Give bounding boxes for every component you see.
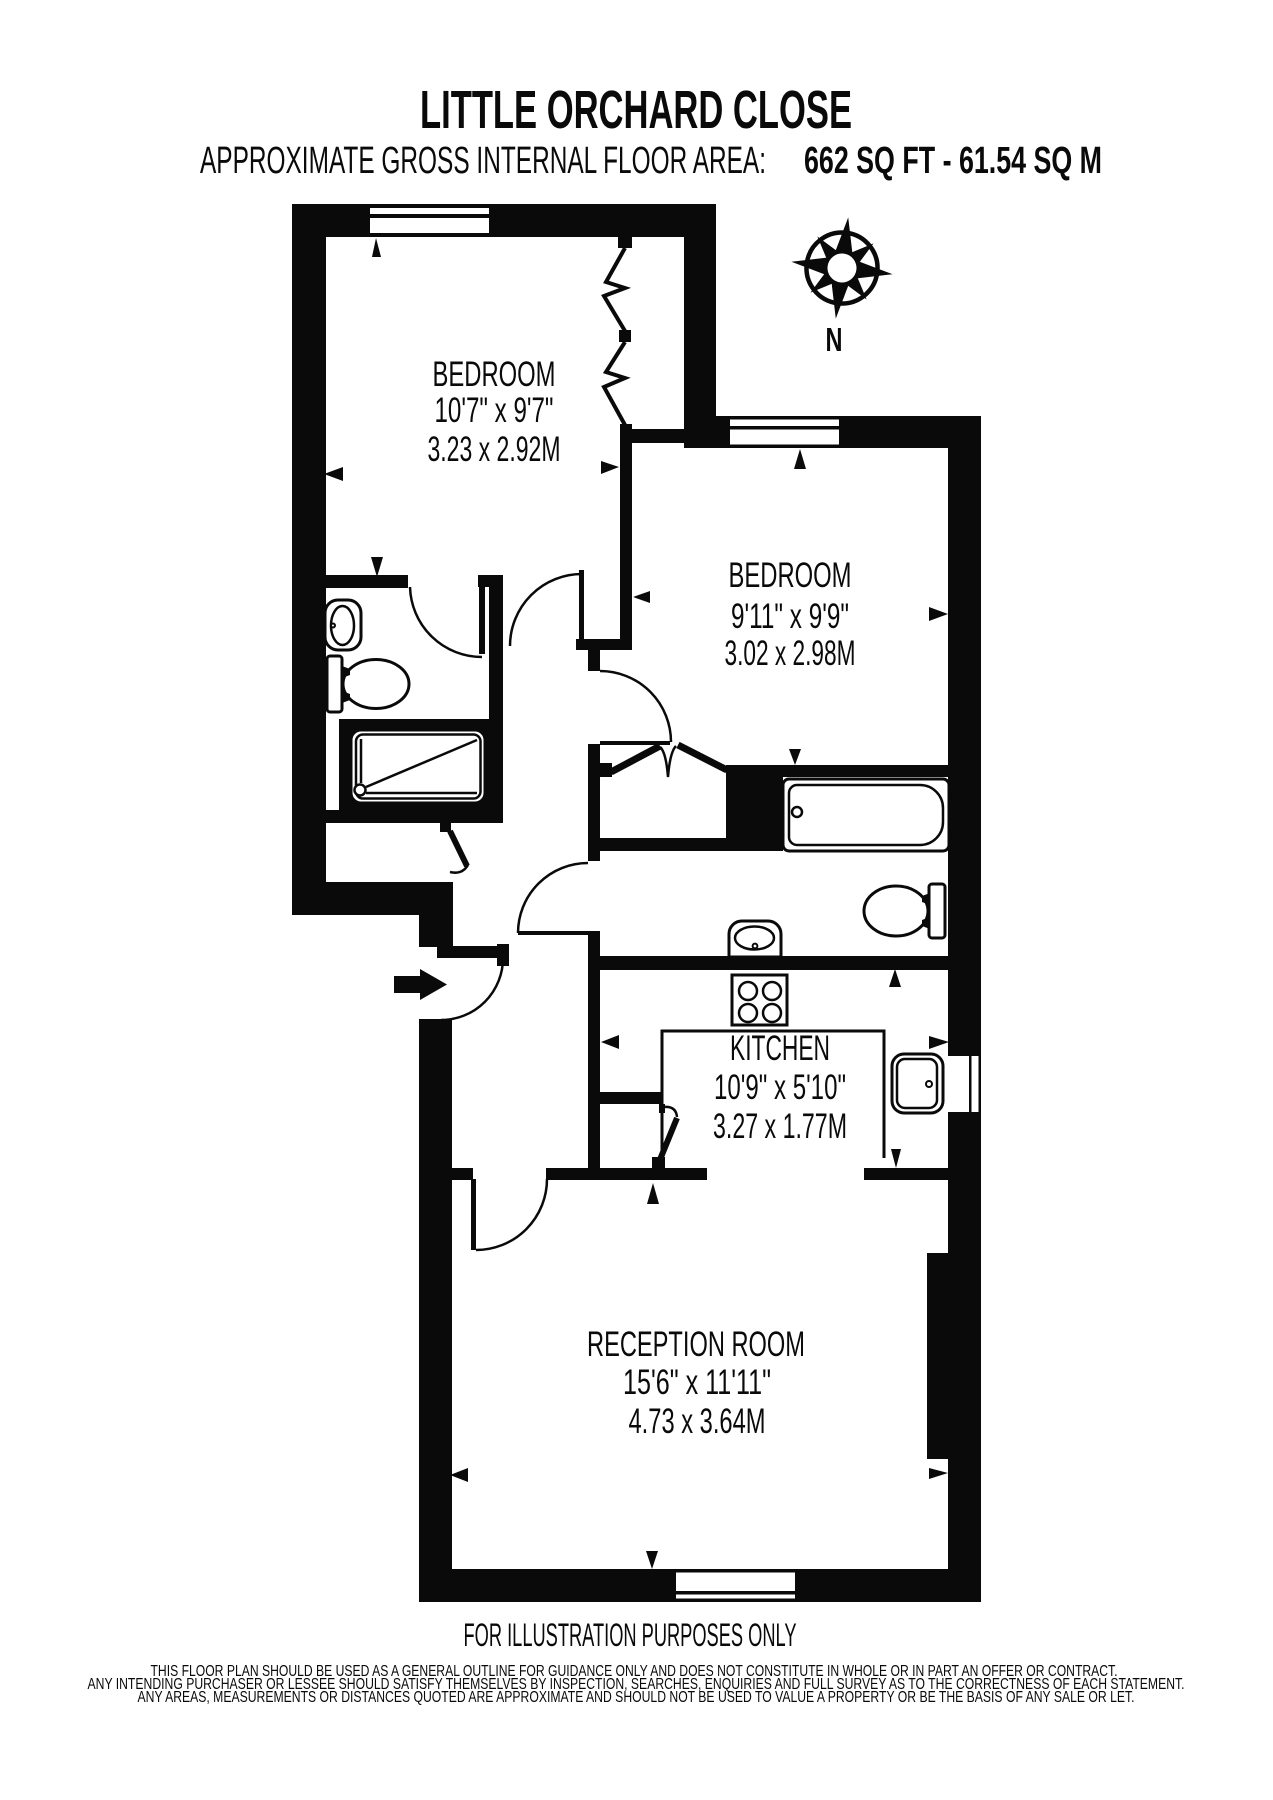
svg-text:10'9" x 5'10": 10'9" x 5'10" xyxy=(714,1068,846,1107)
svg-text:RECEPTION ROOM: RECEPTION ROOM xyxy=(587,1325,805,1364)
svg-text:4.73 x 3.64M: 4.73 x 3.64M xyxy=(629,1402,766,1441)
svg-text:BEDROOM: BEDROOM xyxy=(729,556,852,595)
svg-text:662 SQ FT - 61.54 SQ M: 662 SQ FT - 61.54 SQ M xyxy=(804,140,1102,182)
svg-text:3.02 x 2.98M: 3.02 x 2.98M xyxy=(725,634,856,673)
svg-text:APPROXIMATE GROSS INTERNAL FLO: APPROXIMATE GROSS INTERNAL FLOOR AREA: xyxy=(200,140,766,182)
svg-text:LITTLE ORCHARD CLOSE: LITTLE ORCHARD CLOSE xyxy=(420,80,852,140)
svg-text:FOR ILLUSTRATION PURPOSES ONLY: FOR ILLUSTRATION PURPOSES ONLY xyxy=(464,1617,797,1653)
svg-text:10'7" x 9'7": 10'7" x 9'7" xyxy=(435,391,554,430)
svg-text:BEDROOM: BEDROOM xyxy=(433,355,556,394)
svg-text:ANY AREAS, MEASUREMENTS OR DIS: ANY AREAS, MEASUREMENTS OR DISTANCES QUO… xyxy=(138,1689,1135,1706)
svg-text:3.27 x 1.77M: 3.27 x 1.77M xyxy=(713,1107,847,1146)
svg-text:KITCHEN: KITCHEN xyxy=(730,1029,830,1068)
svg-text:N: N xyxy=(826,321,843,358)
svg-text:15'6" x 11'11": 15'6" x 11'11" xyxy=(623,1363,771,1402)
svg-text:3.23 x 2.92M: 3.23 x 2.92M xyxy=(428,430,561,469)
svg-text:9'11" x 9'9": 9'11" x 9'9" xyxy=(731,597,849,636)
